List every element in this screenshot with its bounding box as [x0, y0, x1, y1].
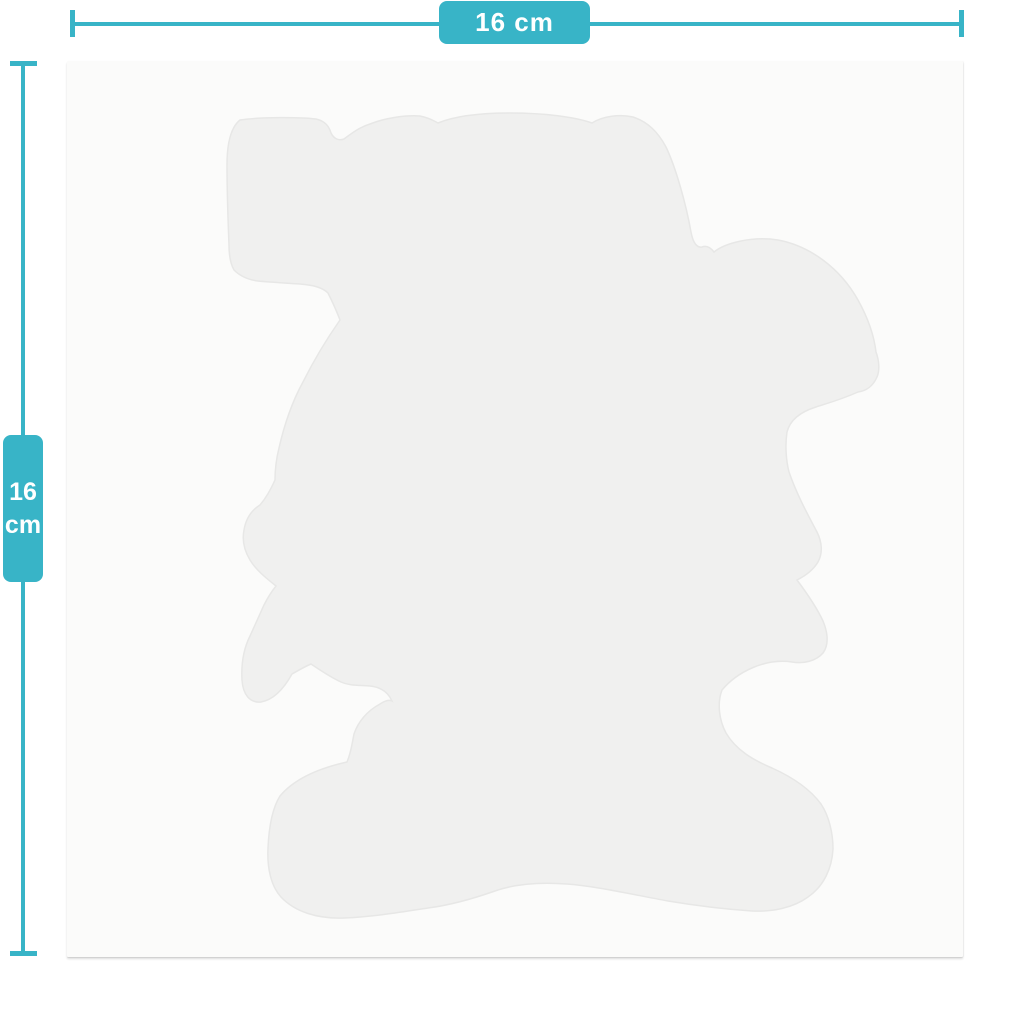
- height-dimension-end-cap: [10, 951, 37, 956]
- width-dimension-end-cap: [959, 10, 964, 37]
- product-size-diagram: 16 cm 16 cm: [0, 0, 1024, 1024]
- height-dimension-start-cap: [10, 61, 37, 66]
- width-dimension-start-cap: [70, 10, 75, 37]
- height-dimension-value: 16: [9, 480, 37, 505]
- square-backing-sheet: [67, 61, 963, 957]
- width-dimension-label: 16 cm: [439, 1, 590, 44]
- width-dimension-label-text: 16 cm: [475, 7, 554, 38]
- height-dimension-label: 16 cm: [3, 435, 43, 582]
- height-dimension-unit: cm: [5, 513, 41, 538]
